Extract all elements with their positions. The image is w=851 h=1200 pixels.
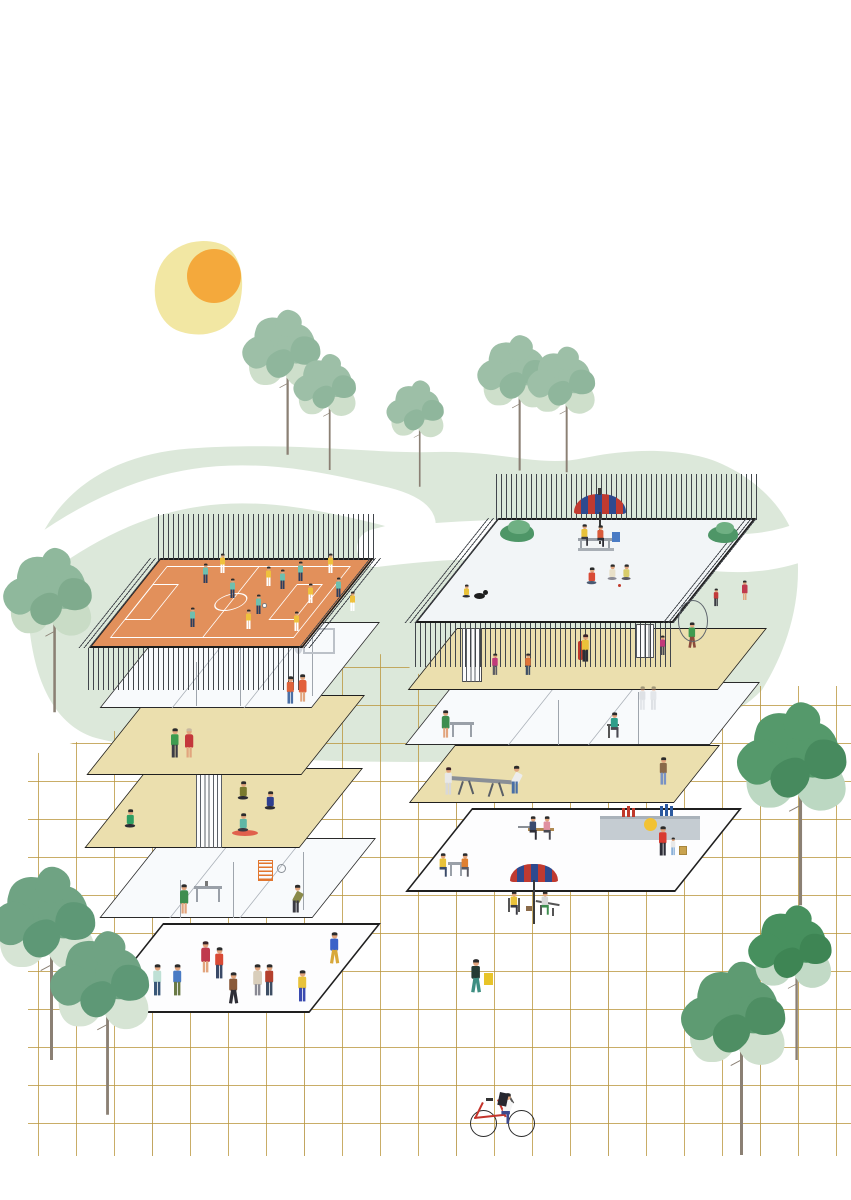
player-yellow-5 [326, 554, 335, 573]
part [671, 837, 674, 839]
part [266, 578, 268, 587]
part [266, 567, 270, 569]
yoga-stretcher [124, 810, 137, 828]
tree-tall-right [738, 711, 851, 905]
bench-sitter-pink [541, 815, 553, 840]
part [302, 692, 304, 702]
roof-bench [578, 548, 614, 551]
part [189, 747, 191, 758]
part [448, 783, 450, 795]
roof-sitter-orange [595, 524, 606, 547]
part [237, 795, 248, 799]
part [215, 953, 223, 965]
phone-browser-man [657, 758, 670, 785]
bottle-blue-3 [670, 806, 673, 816]
part [467, 869, 469, 877]
part [265, 970, 273, 982]
player-yellow-7 [292, 612, 301, 631]
part [287, 692, 289, 704]
frame-faded-1 [637, 687, 648, 710]
ground-umbrella-pole [533, 880, 535, 924]
part [616, 730, 618, 738]
part [205, 961, 207, 972]
part [174, 964, 180, 967]
part [174, 981, 177, 995]
part [582, 524, 586, 526]
left-frame2-wall-2 [303, 852, 304, 910]
rope-arc [678, 600, 708, 642]
part [663, 842, 666, 855]
part [659, 831, 667, 842]
part [219, 964, 222, 978]
part [190, 619, 192, 628]
plaza-person-2 [170, 965, 184, 995]
part [547, 907, 549, 915]
player-teal-1 [201, 564, 210, 583]
wall-clock [277, 864, 286, 873]
part [220, 554, 224, 556]
part [441, 854, 446, 856]
part [464, 585, 468, 587]
part [254, 984, 256, 995]
part [651, 687, 655, 689]
court-fence-front [88, 648, 302, 690]
part [464, 588, 469, 595]
part [528, 666, 530, 675]
part [205, 575, 207, 584]
plaza-person-7 [262, 965, 276, 995]
part [241, 781, 246, 783]
part [585, 539, 587, 546]
part [253, 970, 262, 984]
part [124, 823, 135, 827]
part [186, 728, 191, 731]
part [201, 947, 210, 961]
part [302, 987, 305, 1001]
part [651, 700, 653, 710]
part [330, 938, 338, 950]
part [295, 884, 300, 887]
tree-bg-5 [528, 352, 606, 472]
part [535, 832, 537, 840]
part [220, 565, 222, 574]
player-teal-5 [334, 578, 343, 597]
part [336, 589, 338, 598]
picnic-red-man [586, 568, 598, 585]
part [516, 907, 518, 915]
part [445, 783, 447, 795]
roof-sitter-yellow [579, 523, 590, 546]
part [298, 976, 306, 988]
part [653, 700, 655, 710]
picnic-olive-person [621, 565, 632, 581]
court-fence-back [158, 514, 376, 560]
roof-umbrella-tip [598, 488, 601, 495]
frame2-leaning-man [289, 884, 303, 913]
bottle-blue-2 [665, 804, 668, 816]
desk-right-leg1 [452, 725, 454, 737]
player-yellow-2 [264, 567, 273, 586]
roof-fence-back [496, 474, 758, 520]
orange-shelf [258, 860, 273, 881]
part [601, 540, 603, 547]
part [296, 623, 298, 632]
part [298, 573, 300, 582]
yoga-teal [237, 814, 250, 832]
part [660, 647, 662, 656]
part [445, 728, 447, 738]
part [246, 621, 248, 630]
part [257, 984, 259, 995]
right-frame-plate [405, 682, 760, 745]
part [294, 612, 298, 614]
part [742, 593, 744, 600]
workshop-slab [409, 745, 720, 803]
part [590, 567, 595, 569]
part [607, 577, 616, 580]
kid-red-far [712, 589, 720, 606]
part [172, 728, 177, 731]
part [298, 562, 302, 564]
dog-owner-crouching [462, 585, 471, 598]
part [266, 796, 273, 805]
kid-red-edge [740, 581, 749, 600]
part [598, 525, 602, 527]
yoga-olive [237, 782, 250, 800]
part [495, 666, 497, 675]
stairs-left-hatch [196, 770, 222, 848]
part [126, 814, 133, 823]
bottle-blue-1 [660, 806, 663, 816]
part [203, 564, 207, 566]
part [328, 565, 330, 574]
part [663, 773, 665, 785]
part [582, 650, 584, 662]
part [298, 680, 306, 693]
part [216, 947, 222, 950]
part [673, 847, 675, 855]
part [239, 818, 246, 827]
part [507, 1114, 510, 1124]
player-teal-4 [296, 562, 305, 581]
part [171, 733, 179, 744]
part [512, 892, 517, 894]
picnic-cream-woman [607, 565, 618, 581]
part [203, 575, 205, 584]
part [181, 884, 186, 887]
cafe-sitter-yellow [437, 852, 449, 877]
cafe-sitter-orange [459, 852, 471, 877]
part [493, 654, 497, 656]
cafe-table-leg1 [450, 865, 452, 876]
part [237, 827, 248, 831]
part [180, 889, 188, 903]
part [741, 584, 747, 593]
part [352, 603, 354, 612]
kid-orange [523, 654, 533, 675]
frame1-man [284, 677, 297, 704]
plank-woman [442, 768, 455, 795]
bar-red-man [656, 827, 670, 856]
player-teal-2 [228, 579, 237, 598]
part [441, 716, 449, 729]
part [331, 932, 337, 935]
part [473, 959, 479, 962]
plank-man [508, 765, 522, 794]
part [642, 700, 644, 710]
part [587, 581, 597, 585]
part [330, 565, 332, 574]
part [268, 578, 270, 587]
plaza-person-4 [212, 948, 226, 978]
part [266, 964, 272, 967]
part [239, 786, 246, 795]
part [350, 603, 352, 612]
part [475, 977, 480, 992]
kid-magenta-2 [658, 636, 667, 655]
part [256, 606, 258, 615]
part [543, 892, 548, 894]
part [714, 588, 717, 590]
part [185, 733, 193, 747]
player-yellow-6 [348, 592, 357, 611]
shapes-layer [0, 0, 851, 1200]
part [294, 623, 296, 632]
part [296, 900, 299, 912]
part [258, 606, 260, 615]
desk-left-leg2 [218, 889, 220, 902]
part [173, 970, 181, 982]
desk-right-leg2 [470, 725, 472, 737]
skateboard-woman [579, 635, 592, 662]
part [254, 964, 260, 967]
part [336, 578, 340, 580]
part [310, 595, 312, 604]
part [175, 744, 178, 757]
part [462, 595, 470, 598]
part [232, 590, 234, 599]
roof-bush-right-hi [716, 522, 734, 534]
frame-faded-2 [648, 687, 659, 710]
part [660, 636, 664, 638]
part [269, 981, 272, 995]
bottle-red-1 [622, 808, 625, 817]
bottle-red-3 [632, 808, 635, 817]
roof-cooler [612, 532, 620, 542]
part [609, 569, 615, 577]
lounger-leg2 [552, 908, 554, 916]
part [232, 989, 237, 1003]
part [268, 791, 273, 793]
part [621, 577, 630, 580]
player-yellow-3 [306, 584, 315, 603]
part [290, 692, 292, 704]
part [282, 581, 284, 590]
player-yellow-1 [218, 554, 227, 573]
part [338, 589, 340, 598]
part [640, 700, 642, 710]
part [640, 687, 644, 689]
shopping-bag-yellow [484, 973, 493, 985]
part [308, 595, 310, 604]
tree-bottom-right-2 [749, 912, 845, 1060]
part [192, 619, 194, 628]
part [280, 581, 282, 590]
frame2-desk-woman [177, 885, 191, 914]
stroll-woman [182, 729, 196, 758]
right-frame-wall-1 [558, 700, 559, 745]
part [531, 817, 536, 819]
part [350, 592, 354, 594]
tree-bottom-left-2 [51, 939, 165, 1115]
part [443, 728, 445, 738]
plaza-person-3 [198, 942, 212, 972]
part [328, 554, 332, 556]
part [549, 832, 551, 840]
part [184, 903, 186, 914]
sun-core [187, 249, 241, 303]
picnic-dot [618, 584, 621, 587]
part [514, 765, 519, 768]
part [190, 608, 194, 610]
frame-desk-woman-right [439, 711, 452, 738]
part [589, 572, 596, 580]
part [300, 573, 302, 582]
part [515, 781, 518, 793]
left-frame2-wall-1 [233, 862, 234, 918]
shopping-basket [679, 846, 687, 855]
plaza-person-5 [226, 973, 240, 1003]
plaza-person-9 [327, 933, 341, 963]
bike-saddle [486, 1098, 493, 1101]
part [662, 647, 664, 656]
bar-kid [669, 838, 677, 855]
roof-bush-left-hi [508, 520, 530, 534]
part [660, 826, 665, 829]
part [128, 809, 133, 811]
illustration-scene [0, 0, 851, 1200]
part [202, 941, 208, 944]
player-teal-6 [188, 608, 197, 627]
part [526, 654, 530, 656]
part [660, 773, 662, 785]
ground-side-table [526, 906, 532, 911]
part [299, 970, 305, 973]
phone-walker [468, 960, 483, 992]
part [202, 961, 204, 972]
dog-head [483, 590, 488, 595]
part [266, 981, 269, 995]
frame1-woman [296, 675, 309, 702]
yoga-navy [264, 792, 277, 810]
lounger-person [539, 890, 551, 915]
part [230, 579, 234, 581]
part [545, 817, 550, 819]
frame-teal-sitter [608, 711, 621, 738]
part [299, 987, 302, 1001]
bench-sitter-navy [527, 815, 539, 840]
part [463, 854, 468, 856]
part [308, 584, 312, 586]
plaza-person-8 [295, 971, 309, 1001]
desk-left-cup [205, 881, 208, 886]
part [280, 570, 284, 572]
part [177, 981, 180, 995]
part [246, 610, 250, 612]
tree-bg-3 [387, 385, 453, 487]
bottle-red-2 [627, 806, 630, 817]
part [256, 595, 260, 597]
part [300, 692, 302, 702]
part [264, 805, 275, 809]
part [585, 650, 587, 662]
part [744, 593, 746, 600]
part [248, 621, 250, 630]
stroll-man [168, 729, 182, 758]
player-teal-3 [254, 595, 263, 614]
part [623, 569, 629, 577]
umbrella-sitter-yellow [508, 890, 520, 915]
part [216, 964, 219, 978]
part [716, 598, 718, 606]
part [333, 949, 338, 963]
player-teal-7 [278, 570, 287, 589]
part [472, 965, 481, 978]
desk-left-leg1 [196, 889, 198, 902]
part [230, 590, 232, 599]
part [241, 813, 246, 815]
part [742, 581, 746, 583]
part [222, 565, 224, 574]
player-yellow-4 [244, 610, 253, 629]
part [229, 978, 237, 990]
part [230, 972, 236, 975]
roof-fence-front [415, 623, 673, 667]
kid-magenta-1 [490, 654, 500, 675]
part [445, 869, 447, 877]
tree-bg-2 [294, 359, 366, 470]
